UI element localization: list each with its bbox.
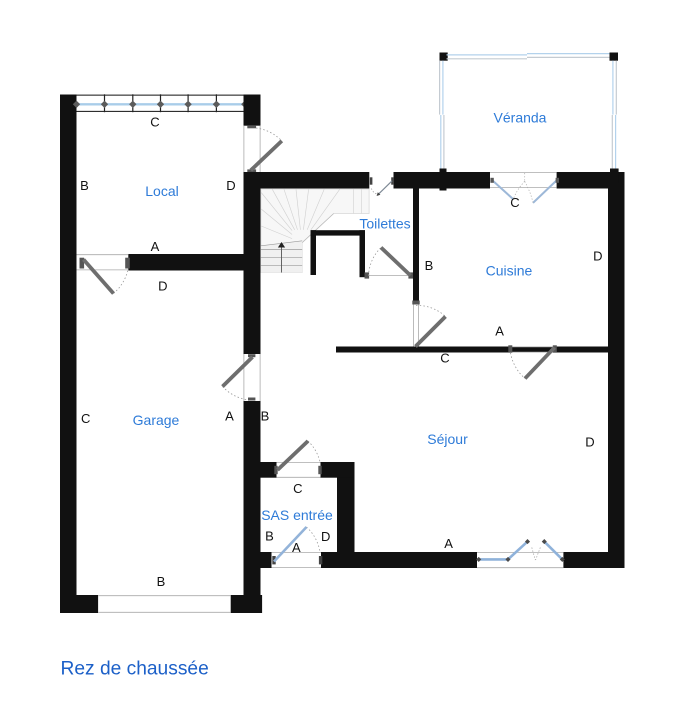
svg-text:C: C <box>293 481 302 496</box>
svg-text:C: C <box>440 350 449 365</box>
svg-text:A: A <box>444 536 453 551</box>
svg-text:B: B <box>261 409 270 424</box>
svg-text:B: B <box>425 258 434 273</box>
svg-text:C: C <box>510 195 519 210</box>
svg-text:C: C <box>81 411 90 426</box>
svg-text:A: A <box>495 324 504 339</box>
svg-text:SAS entrée: SAS entrée <box>261 507 333 523</box>
svg-text:Cuisine: Cuisine <box>486 263 533 279</box>
svg-text:B: B <box>80 178 89 193</box>
svg-text:C: C <box>150 114 159 129</box>
svg-text:A: A <box>151 239 160 254</box>
svg-text:Séjour: Séjour <box>427 431 468 447</box>
svg-text:Garage: Garage <box>133 412 180 428</box>
svg-text:D: D <box>593 248 602 263</box>
svg-text:D: D <box>226 178 235 193</box>
svg-text:B: B <box>265 529 274 544</box>
svg-text:Local: Local <box>145 183 178 199</box>
svg-text:D: D <box>585 435 594 450</box>
svg-text:Rez de chaussée: Rez de chaussée <box>61 659 209 680</box>
svg-text:D: D <box>158 279 167 294</box>
svg-text:Véranda: Véranda <box>494 110 547 126</box>
svg-text:Toilettes: Toilettes <box>359 216 410 232</box>
svg-text:D: D <box>321 529 330 544</box>
svg-text:A: A <box>225 409 234 424</box>
svg-text:B: B <box>157 574 166 589</box>
svg-text:A: A <box>292 540 301 555</box>
